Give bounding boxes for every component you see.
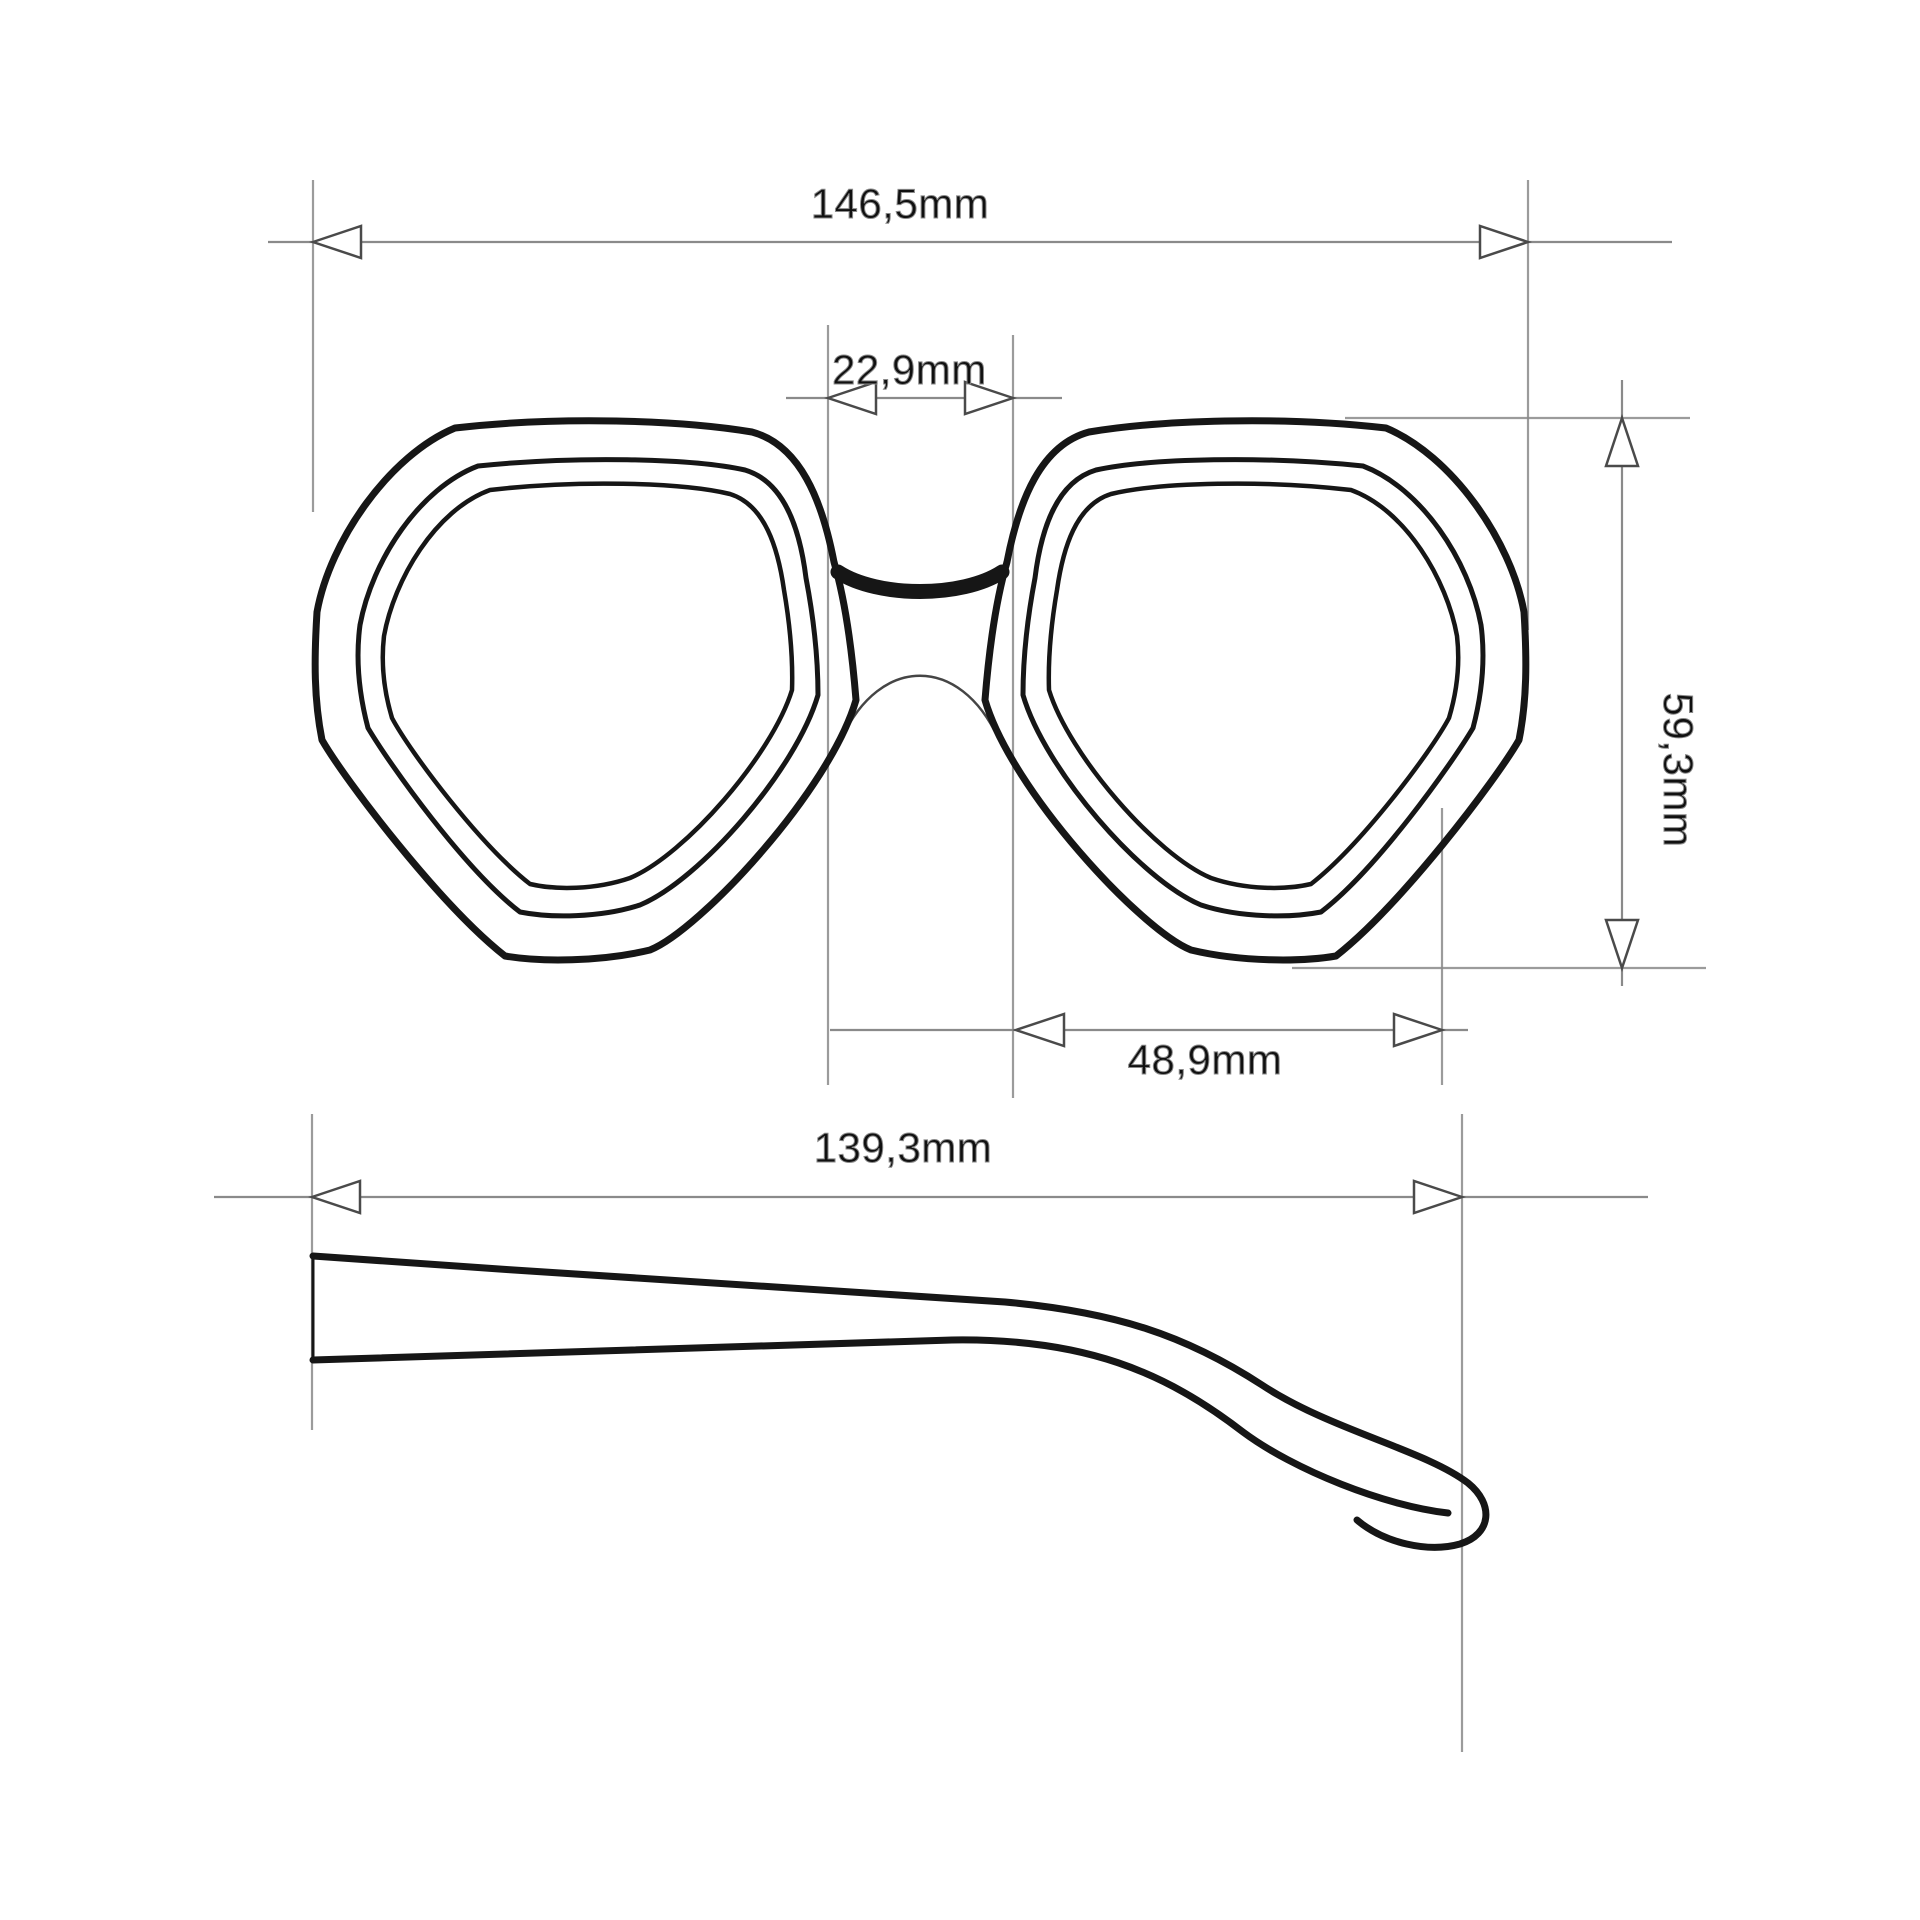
right-lens-inner-rim [1049,484,1458,888]
bridge-width-label: 22,9mm [832,346,987,393]
arrow-left-icon [312,1181,360,1213]
left-lens-inner-rim [383,484,792,888]
arrow-up-icon [1606,418,1638,466]
temple-top-edge [313,1256,1486,1547]
arrow-left-icon [1016,1014,1064,1046]
arrow-right-icon [1394,1014,1442,1046]
lens-height-label: 59,3mm [1655,693,1702,848]
left-lens-middle-rim [358,460,818,916]
right-lens-middle-rim [1023,460,1483,916]
lens-width-label: 48,9mm [1128,1036,1283,1083]
dimension-lens-height: 59,3mm [1292,380,1706,986]
temple-side-view [313,1256,1486,1547]
temple-length-label: 139,3mm [814,1124,993,1171]
arrow-down-icon [1606,920,1638,968]
arrow-left-icon [313,226,361,258]
nose-bridge-arch [842,676,998,738]
left-lens [315,421,856,960]
left-lens-outer-rim [315,421,856,960]
temple-bottom-edge [313,1340,1448,1513]
drawing-svg: 146,5mm 22,9mm 48,9mm 59,3mm [0,0,1920,1920]
dimension-temple-length: 139,3mm [214,1114,1648,1752]
frame-total-width-label: 146,5mm [811,180,990,227]
frame-front-view [315,421,1526,960]
right-lens [985,421,1526,960]
dimension-lens-width: 48,9mm [830,808,1468,1085]
bridge-bar [838,572,1002,592]
sunglasses-technical-drawing: 146,5mm 22,9mm 48,9mm 59,3mm [0,0,1920,1920]
dimension-bridge-width: 22,9mm [786,325,1062,1098]
arrow-right-icon [1480,226,1528,258]
arrow-right-icon [1414,1181,1462,1213]
right-lens-outer-rim [985,421,1526,960]
